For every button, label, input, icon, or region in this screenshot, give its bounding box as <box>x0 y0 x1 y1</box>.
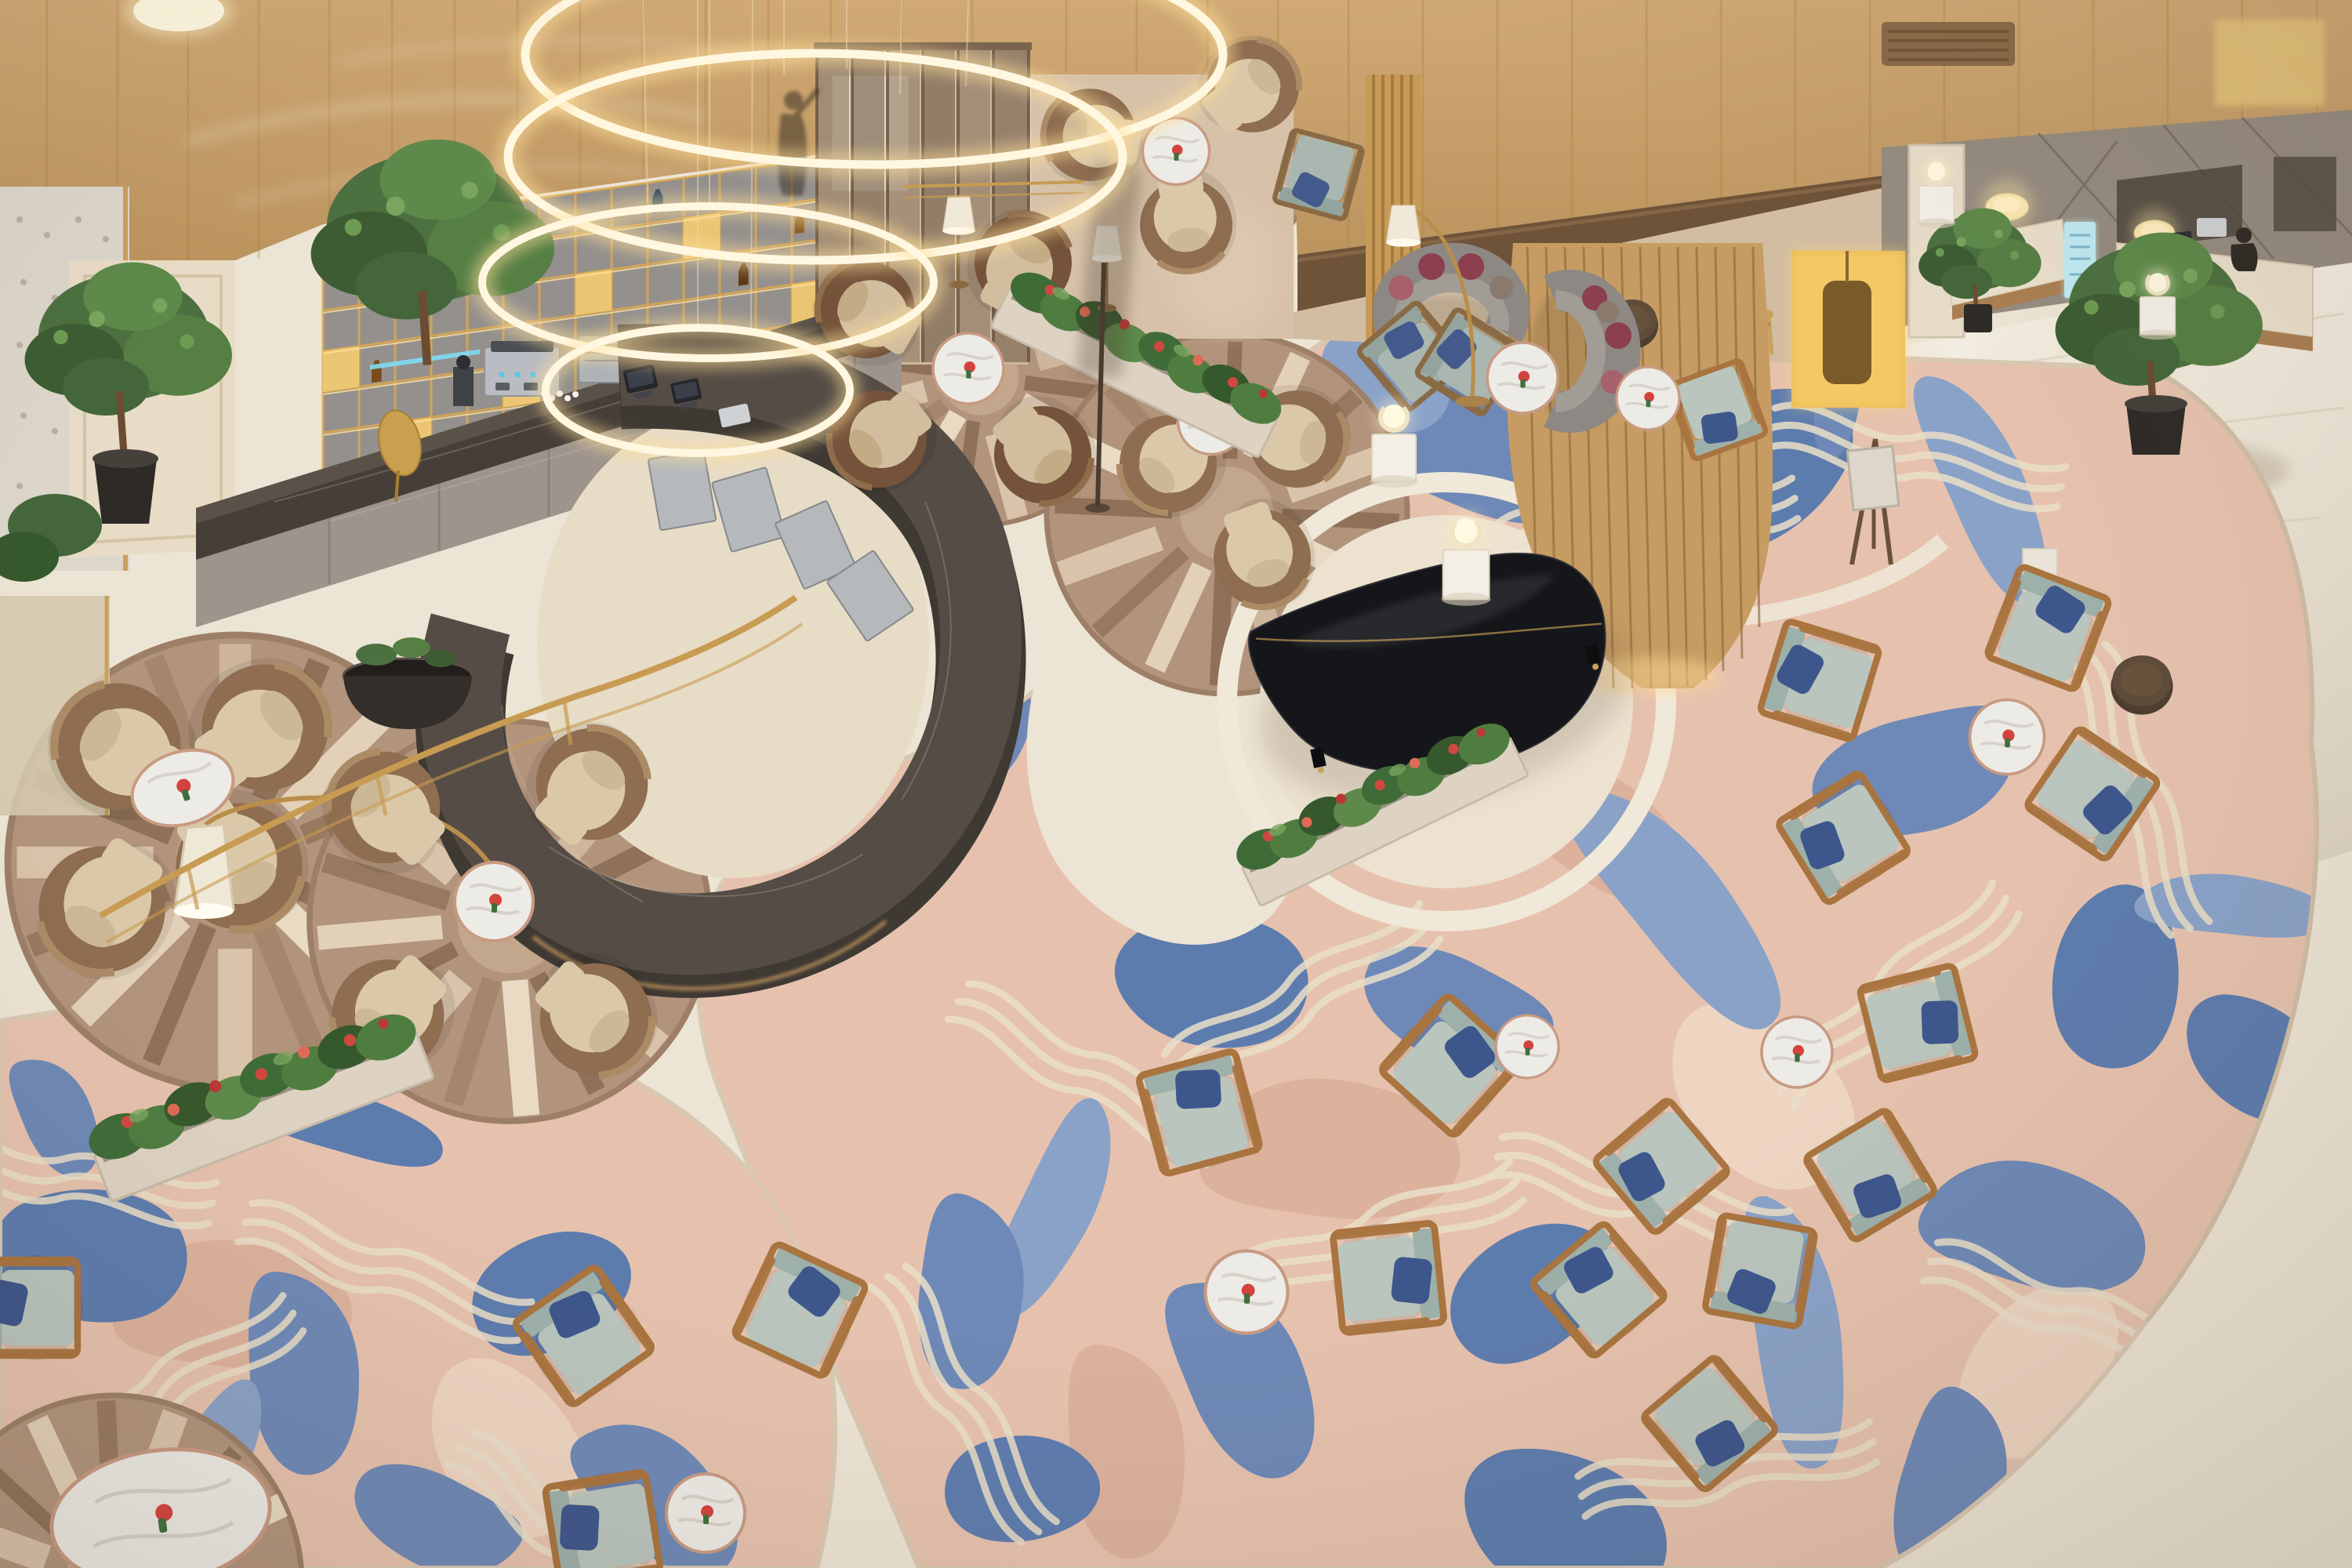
lobby-scene <box>0 0 2352 1568</box>
vignette <box>0 0 2352 1568</box>
lobby-photo <box>0 0 2352 1568</box>
